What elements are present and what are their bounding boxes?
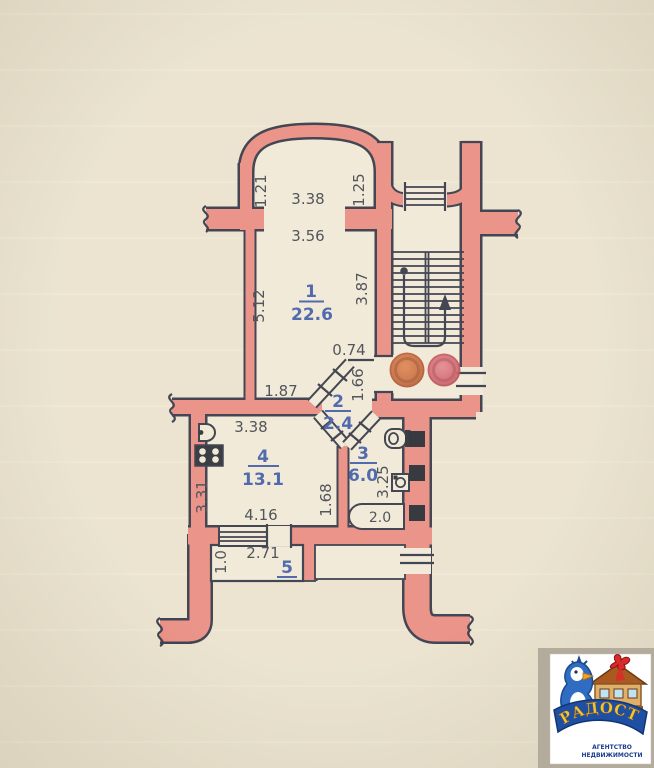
logo-agency-line1: АГЕНТСТВО [592, 744, 632, 751]
logo-agency-line2: НЕДВИЖИМОСТИ [581, 752, 642, 759]
floorplan-photo: 1.21 3.38 1.25 3.56 5.12 3.87 0.74 1.87 … [0, 0, 654, 768]
agency-logo: РАДОСТЬ АГЕНТСТВО НЕДВИЖИМОСТИ [538, 640, 654, 768]
